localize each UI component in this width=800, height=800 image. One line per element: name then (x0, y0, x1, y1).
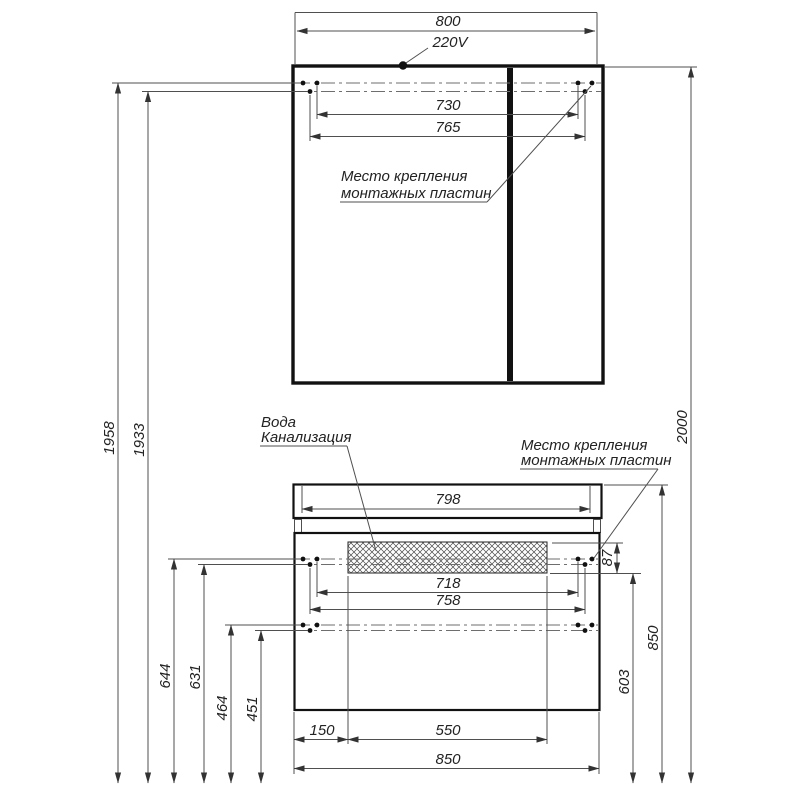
dim-plate-height: 87 (599, 549, 616, 566)
mirror-centerlines (296, 83, 601, 92)
dim-height-603: 603 (616, 669, 633, 695)
dim-vanity-mount-outer: 758 (435, 592, 461, 609)
dim-height-850: 850 (645, 625, 662, 651)
dim-height-464-lines (225, 625, 301, 783)
dim-total-width: 850 (435, 751, 461, 768)
dim-opening-width: 550 (435, 722, 461, 739)
dim-height-1958: 1958 (101, 421, 118, 455)
dim-height-1933: 1933 (131, 423, 148, 457)
vanity-mount-note-line2: монтажных пластин (521, 452, 671, 469)
water-note-line2: Канализация (261, 429, 352, 446)
drawing-sheet: 800 220V 730 765 Место крепления монтажн… (0, 0, 800, 800)
dim-vanity-top-width: 798 (435, 491, 461, 508)
dim-mirror-width: 800 (435, 13, 461, 30)
power-outlet-label: 220V (431, 34, 469, 51)
dim-mirror-mount-outer: 765 (435, 119, 461, 136)
dim-offset-left: 150 (309, 722, 335, 739)
dim-vanity-mount-inner: 718 (435, 575, 461, 592)
dim-height-631-lines (198, 565, 308, 784)
power-outlet-dot (399, 61, 407, 69)
dim-plate-height-lines (550, 543, 641, 574)
water-note-leader (260, 446, 376, 551)
dim-height-644: 644 (157, 663, 174, 688)
dim-height-631: 631 (187, 664, 204, 689)
mirror-mount-note-line1: Место крепления (341, 168, 467, 185)
dim-height-451-lines (255, 631, 308, 784)
mounting-plate-zone (348, 542, 547, 573)
dim-mirror-mount-inner: 730 (435, 97, 461, 114)
dim-height-2000: 2000 (674, 410, 691, 445)
mirror-mount-note-line2: монтажных пластин (341, 185, 491, 202)
installation-drawing: 800 220V 730 765 Место крепления монтажн… (0, 0, 800, 800)
dim-height-464: 464 (214, 695, 231, 720)
dim-height-451: 451 (244, 696, 261, 721)
